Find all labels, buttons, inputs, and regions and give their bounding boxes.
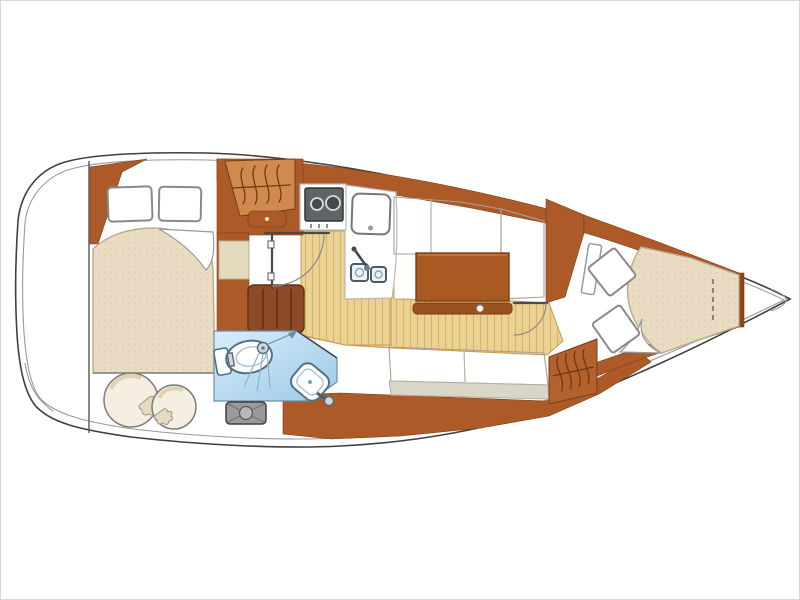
fridge xyxy=(351,193,390,234)
door-hinge xyxy=(268,241,274,248)
deck-hatch xyxy=(226,402,266,424)
drawer-knob xyxy=(265,217,269,221)
door-hinge xyxy=(268,273,274,280)
pillow-aft-2 xyxy=(159,187,202,222)
faucet-knob xyxy=(325,397,334,406)
table-pedestal xyxy=(477,305,484,312)
pillow-aft-1 xyxy=(107,186,152,222)
boat-floorplan xyxy=(1,1,799,599)
fiddle-rail xyxy=(413,303,512,314)
saloon-table xyxy=(416,253,509,301)
round-cushion-2 xyxy=(152,385,196,429)
shelf xyxy=(219,241,249,279)
floorplan-image xyxy=(0,0,800,600)
